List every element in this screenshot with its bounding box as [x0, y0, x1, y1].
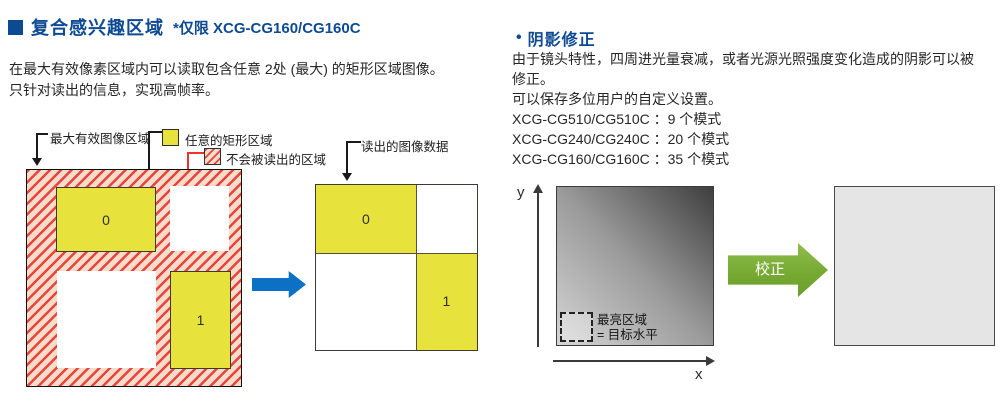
result-region-1: 1 [416, 253, 477, 350]
correction-arrow-label: 校正 [742, 256, 798, 284]
result-grid-horizontal-line [316, 253, 477, 255]
right-section-title: 阴影修正 [528, 26, 596, 50]
right-section-heading: • 阴影修正 [516, 26, 596, 50]
source-unread-region-bottom [57, 271, 156, 368]
left-description-line: 在最大有效像素区域内可以读取包含任意 2处 (最大) 的矩形区域图像。 [9, 59, 444, 80]
x-axis-line [553, 360, 708, 362]
left-description-line: 只针对读出的信息，实现高帧率。 [9, 80, 444, 101]
left-section-heading: 复合感兴趣区域 *仅限 XCG-CG160/CG160C [8, 14, 361, 40]
x-axis-label: x [695, 366, 703, 383]
mode-count-line: XCG-CG160/CG160C ：35 个模式 [512, 149, 974, 169]
corrected-image-diagram [834, 186, 995, 346]
left-section-title-note: *仅限 XCG-CG160/CG160C [173, 17, 361, 38]
source-image-area-diagram: 0 1 [26, 169, 242, 387]
source-region-0: 0 [56, 187, 156, 252]
source-region-1: 1 [170, 271, 231, 369]
result-region-0: 0 [316, 185, 416, 253]
not-read-arrow-line [187, 152, 204, 170]
y-axis-line [537, 191, 539, 347]
source-unread-region-top [170, 186, 229, 251]
mode-count-line: XCG-CG510/CG510C ：9 个模式 [512, 109, 974, 129]
result-diagram-arrow-line [346, 141, 361, 174]
heading-square-icon [8, 20, 23, 35]
right-description-line: 可以保存多位用户的自定义设置。 [512, 89, 974, 109]
y-axis-arrowhead-icon [533, 184, 543, 193]
result-grid-vertical-line [416, 185, 418, 350]
left-section-title: 复合感兴趣区域 [31, 14, 164, 40]
legend-not-read-label: 不会被读出的区域 [226, 149, 326, 168]
brightest-area-box [560, 312, 593, 342]
y-axis-label: y [517, 184, 525, 201]
brochure-page: 复合感兴趣区域 *仅限 XCG-CG160/CG160C 在最大有效像素区域内可… [0, 0, 1000, 404]
brightest-area-label-line: = 目标水平 [597, 328, 658, 343]
max-image-area-arrowhead-icon [32, 158, 42, 166]
result-region-1-label: 1 [443, 293, 451, 309]
brightest-area-label: 最亮区域 = 目标水平 [597, 313, 658, 343]
legend-yellow-swatch-icon [162, 129, 179, 146]
left-description: 在最大有效像素区域内可以读取包含任意 2处 (最大) 的矩形区域图像。 只针对读… [9, 59, 444, 101]
right-description: 由于镜头特性，四周进光量衰减，或者光源光照强度变化造成的阴影可以被 修正。 可以… [512, 49, 974, 169]
readout-result-diagram: 0 1 [315, 184, 478, 351]
legend-arbitrary-rect-label: 任意的矩形区域 [185, 130, 273, 149]
max-image-area-arrow-line [36, 133, 48, 159]
result-region-0-label: 0 [362, 211, 370, 227]
right-description-line: 修正。 [512, 69, 974, 89]
bullet-icon: • [516, 29, 522, 47]
legend-hatch-swatch-icon [204, 148, 221, 165]
result-diagram-arrowhead-icon [342, 173, 352, 181]
right-description-line: 由于镜头特性，四周进光量衰减，或者光源光照强度变化造成的阴影可以被 [512, 49, 974, 69]
result-diagram-label: 读出的图像数据 [361, 136, 449, 155]
mode-count-line: XCG-CG240/CG240C ：20 个模式 [512, 129, 974, 149]
readout-flow-arrow-icon [252, 271, 306, 298]
x-axis-arrowhead-icon [706, 356, 715, 366]
source-region-0-label: 0 [102, 212, 110, 228]
shaded-image-diagram: 最亮区域 = 目标水平 [556, 186, 714, 346]
source-region-1-label: 1 [197, 312, 205, 328]
correction-arrow-icon: 校正 [728, 243, 828, 297]
legend-max-image-area-label: 最大有效图像区域 [50, 128, 150, 147]
brightest-area-label-line: 最亮区域 [597, 313, 658, 328]
